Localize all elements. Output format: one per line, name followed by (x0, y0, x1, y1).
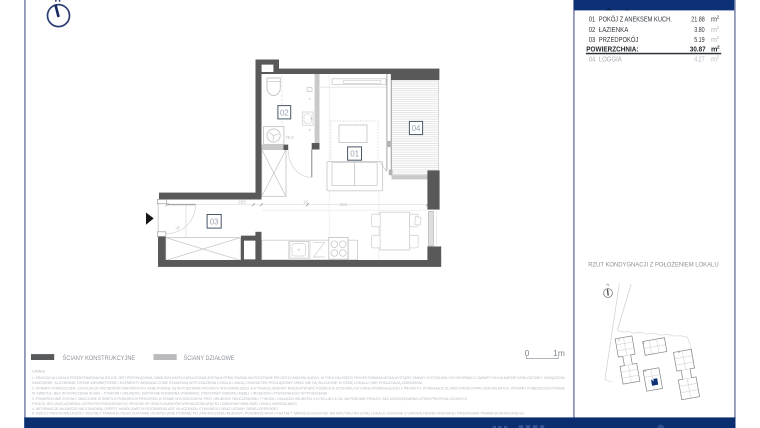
svg-text:03: 03 (210, 217, 219, 226)
svg-text:02: 02 (589, 25, 596, 34)
svg-text:2: 2 (717, 25, 720, 31)
svg-text:POWIERZCHNIA:: POWIERZCHNIA: (586, 45, 638, 54)
svg-text:ŚCIANY KONSTRUKCYJNE: ŚCIANY KONSTRUKCYJNE (63, 354, 136, 362)
svg-text:2: 2 (717, 44, 720, 50)
svg-text:N: N (607, 282, 610, 287)
svg-text:21.88: 21.88 (691, 15, 705, 24)
svg-text:321: 321 (340, 202, 348, 207)
svg-text:2: 2 (717, 35, 720, 41)
svg-text:04: 04 (589, 55, 596, 64)
svg-text:2: 2 (717, 54, 720, 60)
svg-text:01: 01 (589, 15, 596, 24)
svg-text:LOGGIA: LOGGIA (599, 55, 622, 64)
svg-text:265: 265 (238, 200, 246, 205)
svg-text:1m: 1m (553, 348, 565, 358)
svg-text:RZUT KONDYGNACJI Z POŁOŻENIEM: RZUT KONDYGNACJI Z POŁOŻENIEM LOKALU (588, 259, 718, 268)
svg-text:PRZEDPOKÓJ: PRZEDPOKÓJ (599, 35, 639, 44)
svg-text:03: 03 (589, 35, 596, 44)
svg-text:04: 04 (412, 124, 421, 133)
svg-text:02: 02 (280, 108, 289, 117)
svg-text:ŁAZIENKA: ŁAZIENKA (599, 25, 629, 34)
svg-text:5. RZECZYWISTA WIELKOŚĆ I KSZT: 5. RZECZYWISTA WIELKOŚĆ I KSZTAŁT TARASU… (32, 411, 524, 416)
svg-text:01: 01 (350, 150, 359, 159)
svg-text:ŚCIANY DZIAŁOWE: ŚCIANY DZIAŁOWE (184, 354, 235, 362)
svg-text:0: 0 (525, 348, 530, 358)
svg-text:5.19: 5.19 (694, 35, 705, 44)
svg-text:18: 18 (303, 200, 308, 205)
svg-text:3.80: 3.80 (694, 25, 705, 34)
svg-text:78.5: 78.5 (285, 135, 294, 140)
svg-text:30.87: 30.87 (690, 45, 706, 54)
svg-text:UWAGI: UWAGI (32, 369, 45, 374)
svg-text:POKÓJ Z ANEKSEM KUCH.: POKÓJ Z ANEKSEM KUCH. (599, 15, 672, 24)
svg-text:2: 2 (717, 14, 720, 20)
svg-text:4.27: 4.27 (694, 55, 705, 64)
